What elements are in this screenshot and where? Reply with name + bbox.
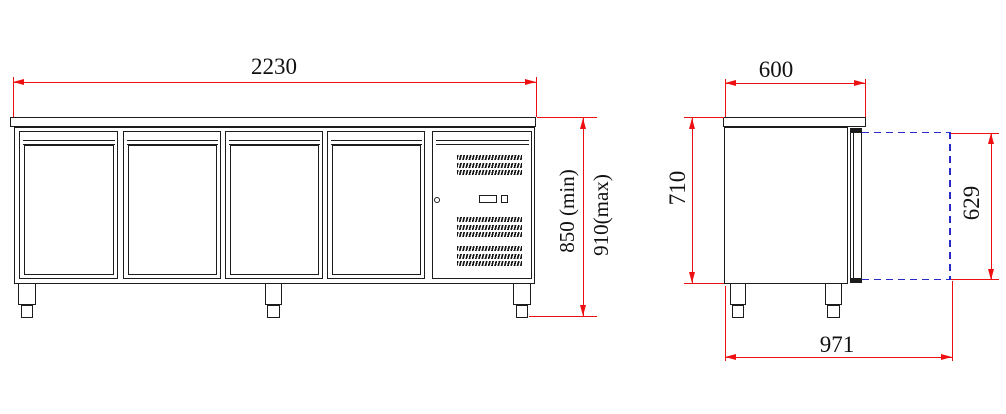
dimension-label-600: 600: [736, 57, 816, 83]
vent-grille-row: [457, 232, 522, 237]
extension-line: [684, 283, 724, 284]
door-panel-4: [327, 131, 425, 279]
dimension-arrow: [941, 354, 952, 360]
vent-grille-row: [457, 217, 522, 222]
door-panel-3: [225, 131, 323, 279]
dimension-line-600: [725, 83, 865, 84]
dimension-label-850-min: 850 (min): [554, 156, 580, 266]
dimension-arrow: [988, 269, 994, 280]
dimension-arrow: [854, 80, 865, 86]
door-hinge-top: [851, 129, 861, 133]
leg-foot: [732, 305, 745, 319]
vent-grille-row: [457, 225, 522, 230]
door-edge-line: [853, 129, 854, 282]
door-handle-recess: [23, 140, 115, 141]
control-panel-cutout: [479, 195, 497, 203]
dimension-line-710: [692, 118, 693, 283]
dimension-arrow: [689, 118, 695, 129]
refrigerated-counter-technical-drawing: 2230 850 (min) 910(max): [0, 0, 1006, 414]
vent-grille-row: [457, 163, 522, 168]
leg: [730, 283, 747, 305]
dimension-label-910-max: 910(max): [588, 160, 614, 270]
extension-line: [13, 77, 14, 117]
dimension-label-971: 971: [797, 332, 877, 358]
compressor-panel: [432, 131, 532, 279]
door-hinge-bottom: [851, 278, 861, 282]
dimension-arrow: [525, 79, 536, 85]
door-panel-1: [19, 131, 118, 279]
leg: [18, 283, 36, 305]
dimension-label-629: 629: [959, 153, 985, 253]
extension-line: [865, 79, 866, 117]
door-swing-outline-bottom: [862, 279, 951, 281]
dimension-arrow: [580, 305, 586, 316]
extension-line: [536, 77, 537, 117]
extension-line: [529, 316, 597, 317]
countertop-side: [723, 117, 866, 127]
door-side-view: [850, 128, 862, 283]
dimension-arrow: [580, 118, 586, 129]
extension-line: [725, 286, 726, 361]
vent-grille-row: [457, 170, 522, 175]
leg: [265, 283, 283, 305]
vent-grille-row: [457, 261, 522, 266]
lock-icon: [434, 197, 440, 203]
leg: [513, 283, 531, 305]
door-handle-recess: [127, 140, 218, 141]
countertop-front: [10, 117, 536, 127]
door-swing-outline-top: [862, 132, 951, 134]
dimension-line-850-910: [583, 118, 584, 316]
extension-line: [952, 281, 953, 361]
leg-foot: [21, 305, 34, 319]
door-panel-2: [123, 131, 221, 279]
dimension-line-629: [991, 133, 992, 280]
extension-line: [725, 79, 726, 117]
dimension-arrow: [988, 133, 994, 144]
switch-cutout: [501, 195, 508, 203]
door-handle-recess: [331, 140, 422, 141]
extension-line: [537, 117, 597, 118]
vent-grille-row: [457, 246, 522, 251]
cabinet-body-side: [724, 127, 848, 284]
dimension-label-710: 710: [665, 138, 691, 238]
panel-recess: [436, 140, 529, 141]
leg-foot: [267, 305, 280, 319]
leg: [825, 283, 842, 305]
dimension-label-2230: 2230: [234, 54, 314, 80]
door-face: [24, 145, 114, 275]
dimension-arrow: [689, 272, 695, 283]
dimension-arrow: [13, 79, 24, 85]
vent-grille-row: [457, 254, 522, 259]
door-swing-outline-right: [949, 132, 951, 280]
dimension-arrow: [725, 80, 736, 86]
door-face: [332, 145, 421, 275]
dimension-arrow: [725, 354, 736, 360]
door-handle-recess: [229, 140, 320, 141]
dimension-line-2230: [13, 82, 536, 83]
leg-foot: [827, 305, 840, 319]
door-face: [128, 145, 217, 275]
door-face: [230, 145, 319, 275]
dimension-line-971: [725, 357, 952, 358]
vent-grille-row: [457, 155, 522, 160]
leg-foot: [516, 305, 529, 319]
panel-recess: [436, 144, 529, 145]
